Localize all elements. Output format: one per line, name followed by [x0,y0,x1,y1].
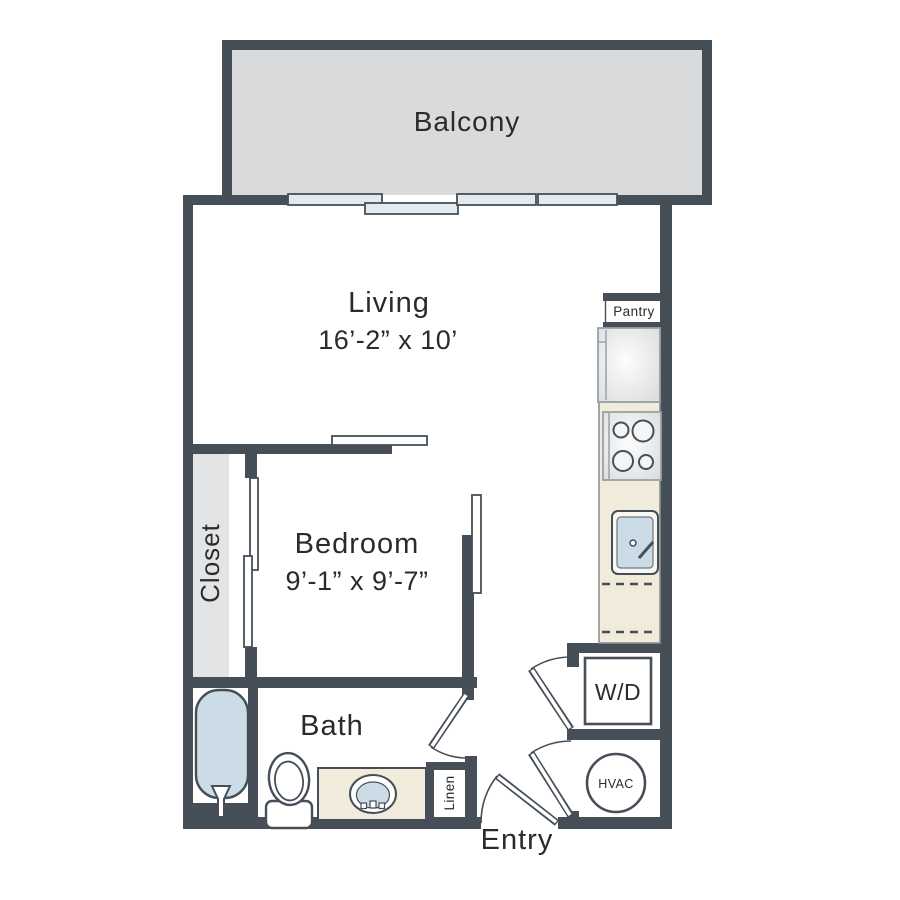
balcony-wall-left [222,40,232,205]
balcony-slider-panel [365,203,458,214]
wall-closet-stub-bottom [245,647,257,679]
kitchen [598,328,661,643]
bathtub-icon [196,690,248,798]
burner-icon [633,421,654,442]
wall-pantry-stub-top [603,293,672,301]
wall-wd-top [567,643,672,653]
vanity-spout-icon [370,801,376,808]
wall-closet-stub-top [245,454,257,478]
wall-top-left-segment [183,195,288,205]
floor-plan-page: Balcony Living 16’-2” x 10’ Bedroom 9’-1… [0,0,900,900]
vanity-handle-icon [379,803,385,809]
burner-icon [613,451,633,471]
burner-icon [639,455,653,469]
wall-bath-top [183,677,477,688]
living-dimensions: 16’-2” x 10’ [318,325,458,355]
living-label: Living [348,287,430,319]
closet-slider-panel [244,556,252,647]
floor-plan: Balcony Living 16’-2” x 10’ Bedroom 9’-1… [0,0,900,900]
stove-icon [603,412,661,480]
wall-left [183,195,193,827]
wall-wd-hinge-stub [567,643,579,667]
wall-linen-right [465,756,477,822]
pantry-label: Pantry [613,304,654,319]
closet-label: Closet [195,523,225,603]
wall-tub-divider [248,683,258,807]
burner-icon [614,423,629,438]
bath-label: Bath [300,710,364,742]
bedroom-label: Bedroom [295,528,420,560]
wall-wd-hvac-divider [567,729,672,740]
wd-label: W/D [595,679,641,705]
wall-linen-left [426,762,434,822]
bedroom-slider-panel-vertical [472,495,481,593]
balcony-slider-panel [538,194,617,205]
refrigerator-icon [598,328,660,402]
balcony-wall-top [222,40,712,50]
bedroom-dimensions: 9’-1” x 9’-7” [285,566,428,596]
bedroom-slider-panel-horizontal [332,436,427,445]
hvac-label: HVAC [598,777,633,791]
balcony-wall-right [702,40,712,205]
sink-drain-icon [630,540,636,546]
balcony-slider-panel [457,194,536,205]
linen-label: Linen [442,775,457,810]
vanity-handle-icon [361,803,367,809]
balcony-label: Balcony [414,106,521,137]
entry-label: Entry [481,824,554,856]
